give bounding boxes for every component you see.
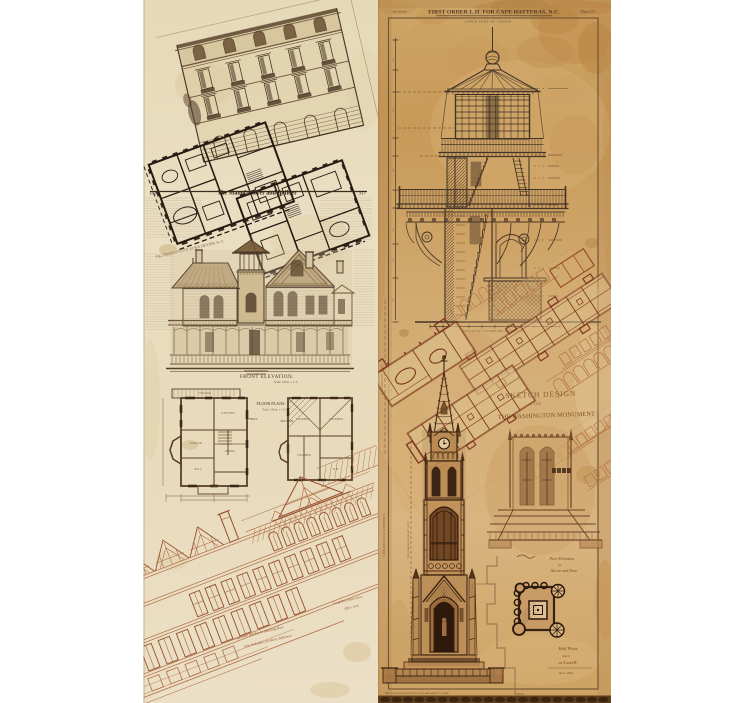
svg-text:THE PHOTO-ELECTROTYPE CO. 205: THE PHOTO-ELECTROTYPE CO. 205 BROADWAY N… <box>385 692 449 695</box>
svg-text:317: 317 <box>359 192 367 197</box>
svg-text:FLOOR PLANS.: FLOOR PLANS. <box>256 401 285 406</box>
svg-text:UPPER PART OF TOWER: UPPER PART OF TOWER <box>465 20 512 24</box>
svg-text:Scale 1/16 in. = 1 ft.: Scale 1/16 in. = 1 ft. <box>263 409 286 412</box>
svg-text:at A and B.: at A and B. <box>559 660 578 665</box>
svg-text:Plate 272.: Plate 272. <box>579 10 596 14</box>
svg-text:Alcove and Rear.: Alcove and Rear. <box>549 568 577 573</box>
svg-text:CHAMBER: CHAMBER <box>296 418 310 421</box>
svg-text:HALL: HALL <box>194 468 202 471</box>
svg-text:CHAMBER: CHAMBER <box>329 418 343 421</box>
svg-text:S. ARCHITECT N.Y. BLDG: S. ARCHITECT N.Y. BLDG <box>381 365 384 395</box>
svg-text:S. BUILDING OF U.S. MONUMENT N: S. BUILDING OF U.S. MONUMENT N. <box>383 513 386 557</box>
svg-text:FOR: FOR <box>530 401 542 406</box>
svg-text:The Manufacturer and Builder: The Manufacturer and Builder <box>217 191 297 197</box>
svg-text:PARLOR: PARLOR <box>190 441 202 445</box>
svg-text:Half Plans: Half Plans <box>558 646 578 651</box>
svg-text:Jan 3. 1884.: Jan 3. 1884. <box>559 671 574 675</box>
svg-text:2nd Series.: 2nd Series. <box>392 10 407 14</box>
svg-text:DINING: DINING <box>225 449 236 453</box>
svg-text:CHAMBER: CHAMBER <box>297 454 311 457</box>
svg-text:Part Elevation: Part Elevation <box>549 556 575 561</box>
svg-text:TOTAL HEIGHT OF SHAFT 525 FT: TOTAL HEIGHT OF SHAFT 525 FT <box>407 521 410 558</box>
svg-text:taken: taken <box>563 654 570 658</box>
svg-text:193: 193 <box>149 192 157 197</box>
svg-text:FIRST.: FIRST. <box>248 417 257 421</box>
svg-text:KITCHEN: KITCHEN <box>221 411 235 415</box>
svg-text:FIRST ORDER L.H. FOR CAPE HATT: FIRST ORDER L.H. FOR CAPE HATTERAS, N.C. <box>428 10 560 16</box>
svg-text:VERANDA: VERANDA <box>199 392 212 395</box>
svg-text:Scale 1/8 in. = 1 ft.: Scale 1/8 in. = 1 ft. <box>274 380 299 384</box>
svg-text:SECOND.: SECOND. <box>280 419 294 423</box>
